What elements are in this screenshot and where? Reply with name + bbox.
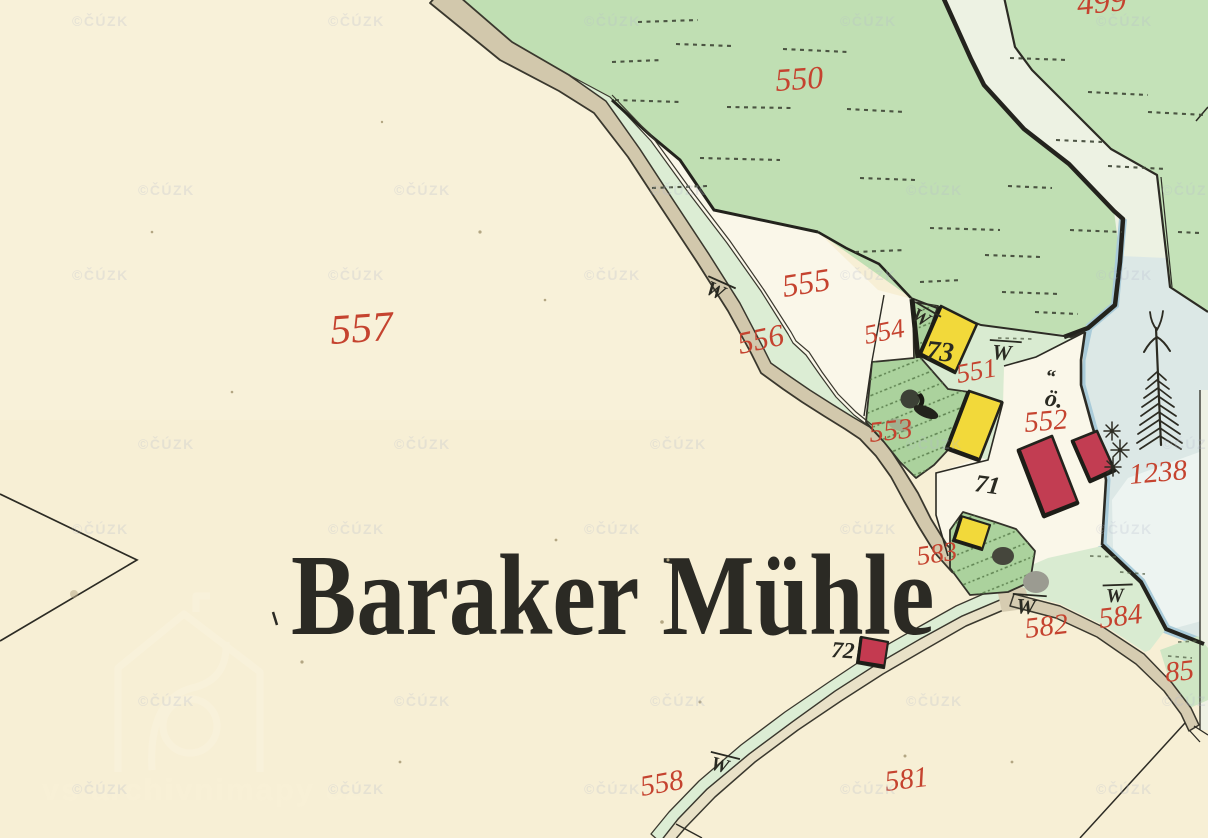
svg-text:©ČÚZK: ©ČÚZK <box>72 520 129 537</box>
svg-text:©ČÚZK: ©ČÚZK <box>328 266 385 283</box>
svg-text:©ČÚZK: ©ČÚZK <box>584 12 641 29</box>
svg-text:555: 555 <box>779 261 832 304</box>
svg-text:©ČÚZK: ©ČÚZK <box>394 181 451 198</box>
svg-text:1238: 1238 <box>1128 454 1189 491</box>
svg-text:73: 73 <box>924 335 955 369</box>
svg-text:©ČÚZK: ©ČÚZK <box>72 12 129 29</box>
svg-text:W: W <box>1015 593 1038 619</box>
svg-text:Baraker Mühle: Baraker Mühle <box>291 531 934 660</box>
svg-text:©ČÚZK: ©ČÚZK <box>394 435 451 452</box>
svg-text:©ČÚZK: ©ČÚZK <box>1162 181 1208 198</box>
svg-text:©ČÚZK: ©ČÚZK <box>584 266 641 283</box>
svg-text:©ČÚZK: ©ČÚZK <box>906 181 963 198</box>
svg-text:©ČÚZK: ©ČÚZK <box>650 435 707 452</box>
svg-text:©ČÚZK: ©ČÚZK <box>138 692 195 709</box>
svg-text:71: 71 <box>973 470 1002 500</box>
svg-text:85: 85 <box>1163 654 1195 689</box>
svg-text:©ČÚZK: ©ČÚZK <box>840 266 897 283</box>
svg-text:©ČÚZK: ©ČÚZK <box>1096 266 1153 283</box>
svg-text:©ČÚZK: ©ČÚZK <box>1096 780 1153 797</box>
svg-text:©ČÚZK: ©ČÚZK <box>72 266 129 283</box>
svg-text:©ČÚZK: ©ČÚZK <box>906 692 963 709</box>
svg-text:©ČÚZK: ©ČÚZK <box>328 520 385 537</box>
svg-text:550: 550 <box>774 59 824 98</box>
svg-text:©ČÚZK: ©ČÚZK <box>650 692 707 709</box>
svg-text:©ČÚZK: ©ČÚZK <box>328 780 385 797</box>
svg-text:©ČÚZK: ©ČÚZK <box>328 12 385 29</box>
svg-text:©ČÚZK: ©ČÚZK <box>584 520 641 537</box>
svg-text:W: W <box>1106 585 1126 608</box>
svg-text:©ČÚZK: ©ČÚZK <box>138 435 195 452</box>
svg-text:©ČÚZK: ©ČÚZK <box>1096 520 1153 537</box>
svg-text:©ČÚZK: ©ČÚZK <box>840 520 897 537</box>
svg-text:©ČÚZK: ©ČÚZK <box>584 780 641 797</box>
svg-text:©ČÚZK: ©ČÚZK <box>394 692 451 709</box>
svg-text:©ČÚZK: ©ČÚZK <box>840 12 897 29</box>
svg-text:©ČÚZK: ©ČÚZK <box>650 181 707 198</box>
svg-text:©ČÚZK: ©ČÚZK <box>72 780 129 797</box>
svg-text:©ČÚZK: ©ČÚZK <box>1162 435 1208 452</box>
svg-text:©ČÚZK: ©ČÚZK <box>1096 12 1153 29</box>
svg-text:©ČÚZK: ©ČÚZK <box>840 780 897 797</box>
svg-text:©ČÚZK: ©ČÚZK <box>138 181 195 198</box>
svg-text:©ČÚZK: ©ČÚZK <box>1162 692 1208 709</box>
svg-text:W: W <box>991 339 1014 365</box>
svg-text:557: 557 <box>328 304 396 354</box>
svg-text:©ČÚZK: ©ČÚZK <box>906 435 963 452</box>
